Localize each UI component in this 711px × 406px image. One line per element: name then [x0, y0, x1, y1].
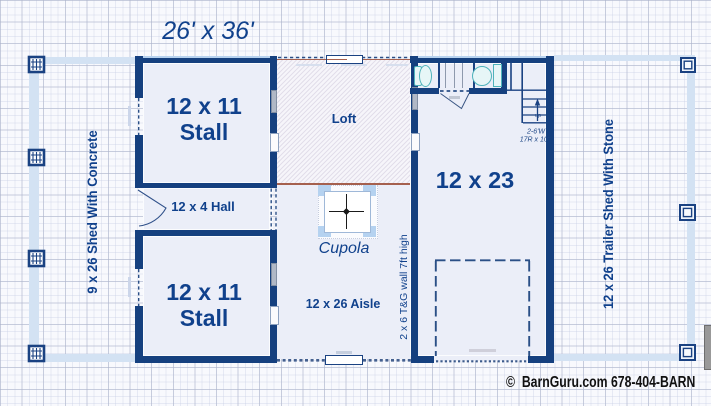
svg-text:up: up [535, 113, 541, 119]
svg-text:2-6'W: 2-6'W [526, 129, 546, 136]
svg-text:17R x 10": 17R x 10" [520, 137, 551, 144]
